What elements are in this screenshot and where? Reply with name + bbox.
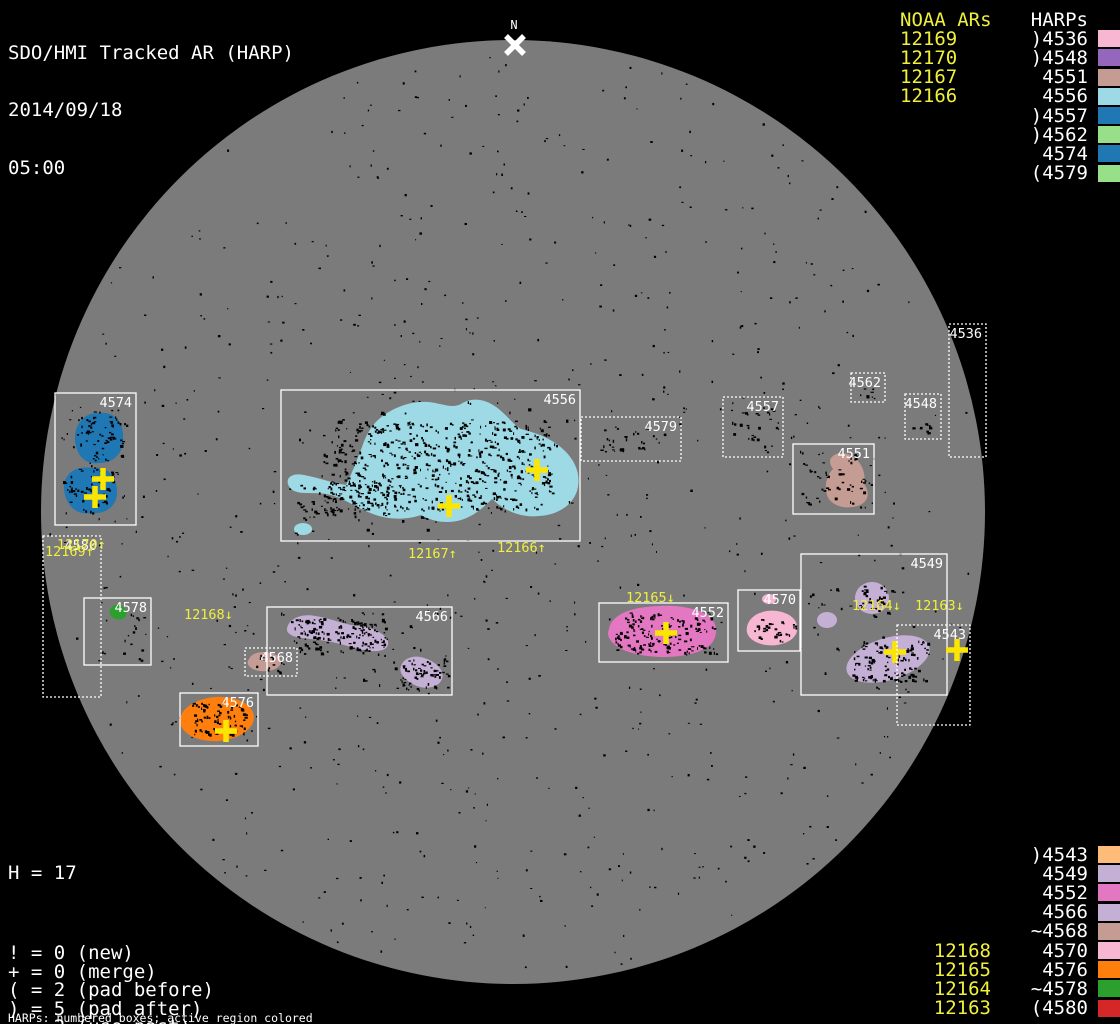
harp-list-row: 12170)4548 [897, 48, 1120, 67]
harp-color-chip [1098, 1000, 1120, 1017]
harp-box-label: 4551 [837, 446, 870, 462]
harp-list-row: ~4568 [899, 922, 1120, 941]
harp-list-row: 4574 [897, 144, 1120, 163]
harp-box-label: 4578 [114, 600, 147, 616]
harp-color-chip [1098, 145, 1120, 162]
harp-list-row: 4552 [899, 883, 1120, 902]
harp-box-label: 4562 [848, 375, 881, 391]
active-region-blob [75, 413, 123, 464]
harp-color-chip [1098, 846, 1120, 863]
noaa-harp-table-bottom: )4543 4549 4552 4566~456812168 457012165… [899, 845, 1120, 1018]
legend-entry: ! = 0 (new) [8, 944, 225, 963]
harp-box-label: 4552 [691, 605, 724, 621]
harp-rows-bottom: )4543 4549 4552 4566~456812168 457012165… [899, 845, 1120, 1018]
harp-box-label: 4574 [99, 395, 132, 411]
harp-list-row: (4579 [897, 164, 1120, 183]
harp-color-chip [1098, 942, 1120, 959]
harp-color-chip [1098, 865, 1120, 882]
footnote-harps: HARPs: numbered boxes; active region col… [8, 1013, 410, 1024]
harp-color-chip [1098, 884, 1120, 901]
header: SDO/HMI Tracked AR (HARP) 2014/09/18 05:… [8, 5, 294, 217]
noaa-ar-disk-label: 12168↓ [184, 607, 233, 623]
harp-list-row: )4557 [897, 106, 1120, 125]
app-title: SDO/HMI Tracked AR (HARP) [8, 44, 294, 63]
harp-list-row: 12167 4551 [897, 68, 1120, 87]
harp-box-label: 4576 [221, 695, 254, 711]
harp-color-chip [1098, 165, 1120, 182]
harp-list-row: 12164~4578 [899, 979, 1120, 998]
noaa-ar-disk-label: 12163↓ [915, 598, 964, 614]
harp-color-chip [1098, 30, 1120, 47]
harp-color-chip [1098, 88, 1120, 105]
harp-box-label: 4566 [415, 609, 448, 625]
noaa-ar-number: 12166 [897, 85, 992, 107]
harp-number: (4579 [992, 162, 1088, 184]
harp-list-row: 4549 [899, 864, 1120, 883]
observation-date: 2014/09/18 [8, 101, 294, 120]
harp-box-label: 4579 [644, 419, 677, 435]
harp-list-row: 12166 4556 [897, 87, 1120, 106]
harp-color-chip [1098, 980, 1120, 997]
harp-box-label: 4549 [910, 556, 943, 572]
harp-number: (4580 [992, 997, 1088, 1019]
harp-list-row: 12165 4576 [899, 960, 1120, 979]
noaa-ar-disk-label: 12164↓ [852, 598, 901, 614]
harp-list-row: )4543 [899, 845, 1120, 864]
observation-time: 05:00 [8, 159, 294, 178]
harp-list-row: 4566 [899, 903, 1120, 922]
harp-color-chip [1098, 126, 1120, 143]
harp-box-label: 4556 [543, 392, 576, 408]
harp-box-label: 4548 [904, 396, 937, 412]
harp-tracker-view: 4574458045784568456645764556457945574562… [0, 0, 1120, 1024]
noaa-ar-disk-label: 12166↑ [497, 540, 546, 556]
noaa-ar-disk-label: 12170↑ [57, 537, 106, 553]
active-region-blob [817, 612, 837, 628]
harp-color-chip [1098, 904, 1120, 921]
harp-list-row: 12169)4536 [897, 29, 1120, 48]
harp-color-chip [1098, 69, 1120, 86]
harp-list-row: 12163(4580 [899, 999, 1120, 1018]
noaa-ar-disk-label: 12167↑ [408, 546, 457, 562]
noaa-harp-table-top: NOAA ARs HARPs 12169)453612170)454812167… [897, 10, 1120, 183]
harp-color-chip [1098, 107, 1120, 124]
harp-rows-top: 12169)453612170)454812167 455112166 4556… [897, 29, 1120, 183]
north-label: N [510, 18, 517, 32]
harp-box-label: 4536 [949, 326, 982, 342]
harp-color-chip [1098, 961, 1120, 978]
harp-list-row: 12168 4570 [899, 941, 1120, 960]
harp-count: H = 17 [8, 864, 225, 883]
harp-box-label: 4557 [746, 399, 779, 415]
harp-color-chip [1098, 923, 1120, 940]
harp-box-label: 4568 [260, 650, 293, 666]
table-header-row: NOAA ARs HARPs [897, 10, 1120, 29]
footnotes: HARPs: numbered boxes; active region col… [8, 990, 410, 1024]
harp-box-label: 4570 [763, 592, 796, 608]
noaa-ar-number: 12163 [899, 997, 992, 1019]
harp-color-chip [1098, 49, 1120, 66]
harp-list-row: )4562 [897, 125, 1120, 144]
harp-box-label: 4543 [933, 627, 966, 643]
noaa-ar-disk-label: 12165↓ [626, 590, 675, 606]
